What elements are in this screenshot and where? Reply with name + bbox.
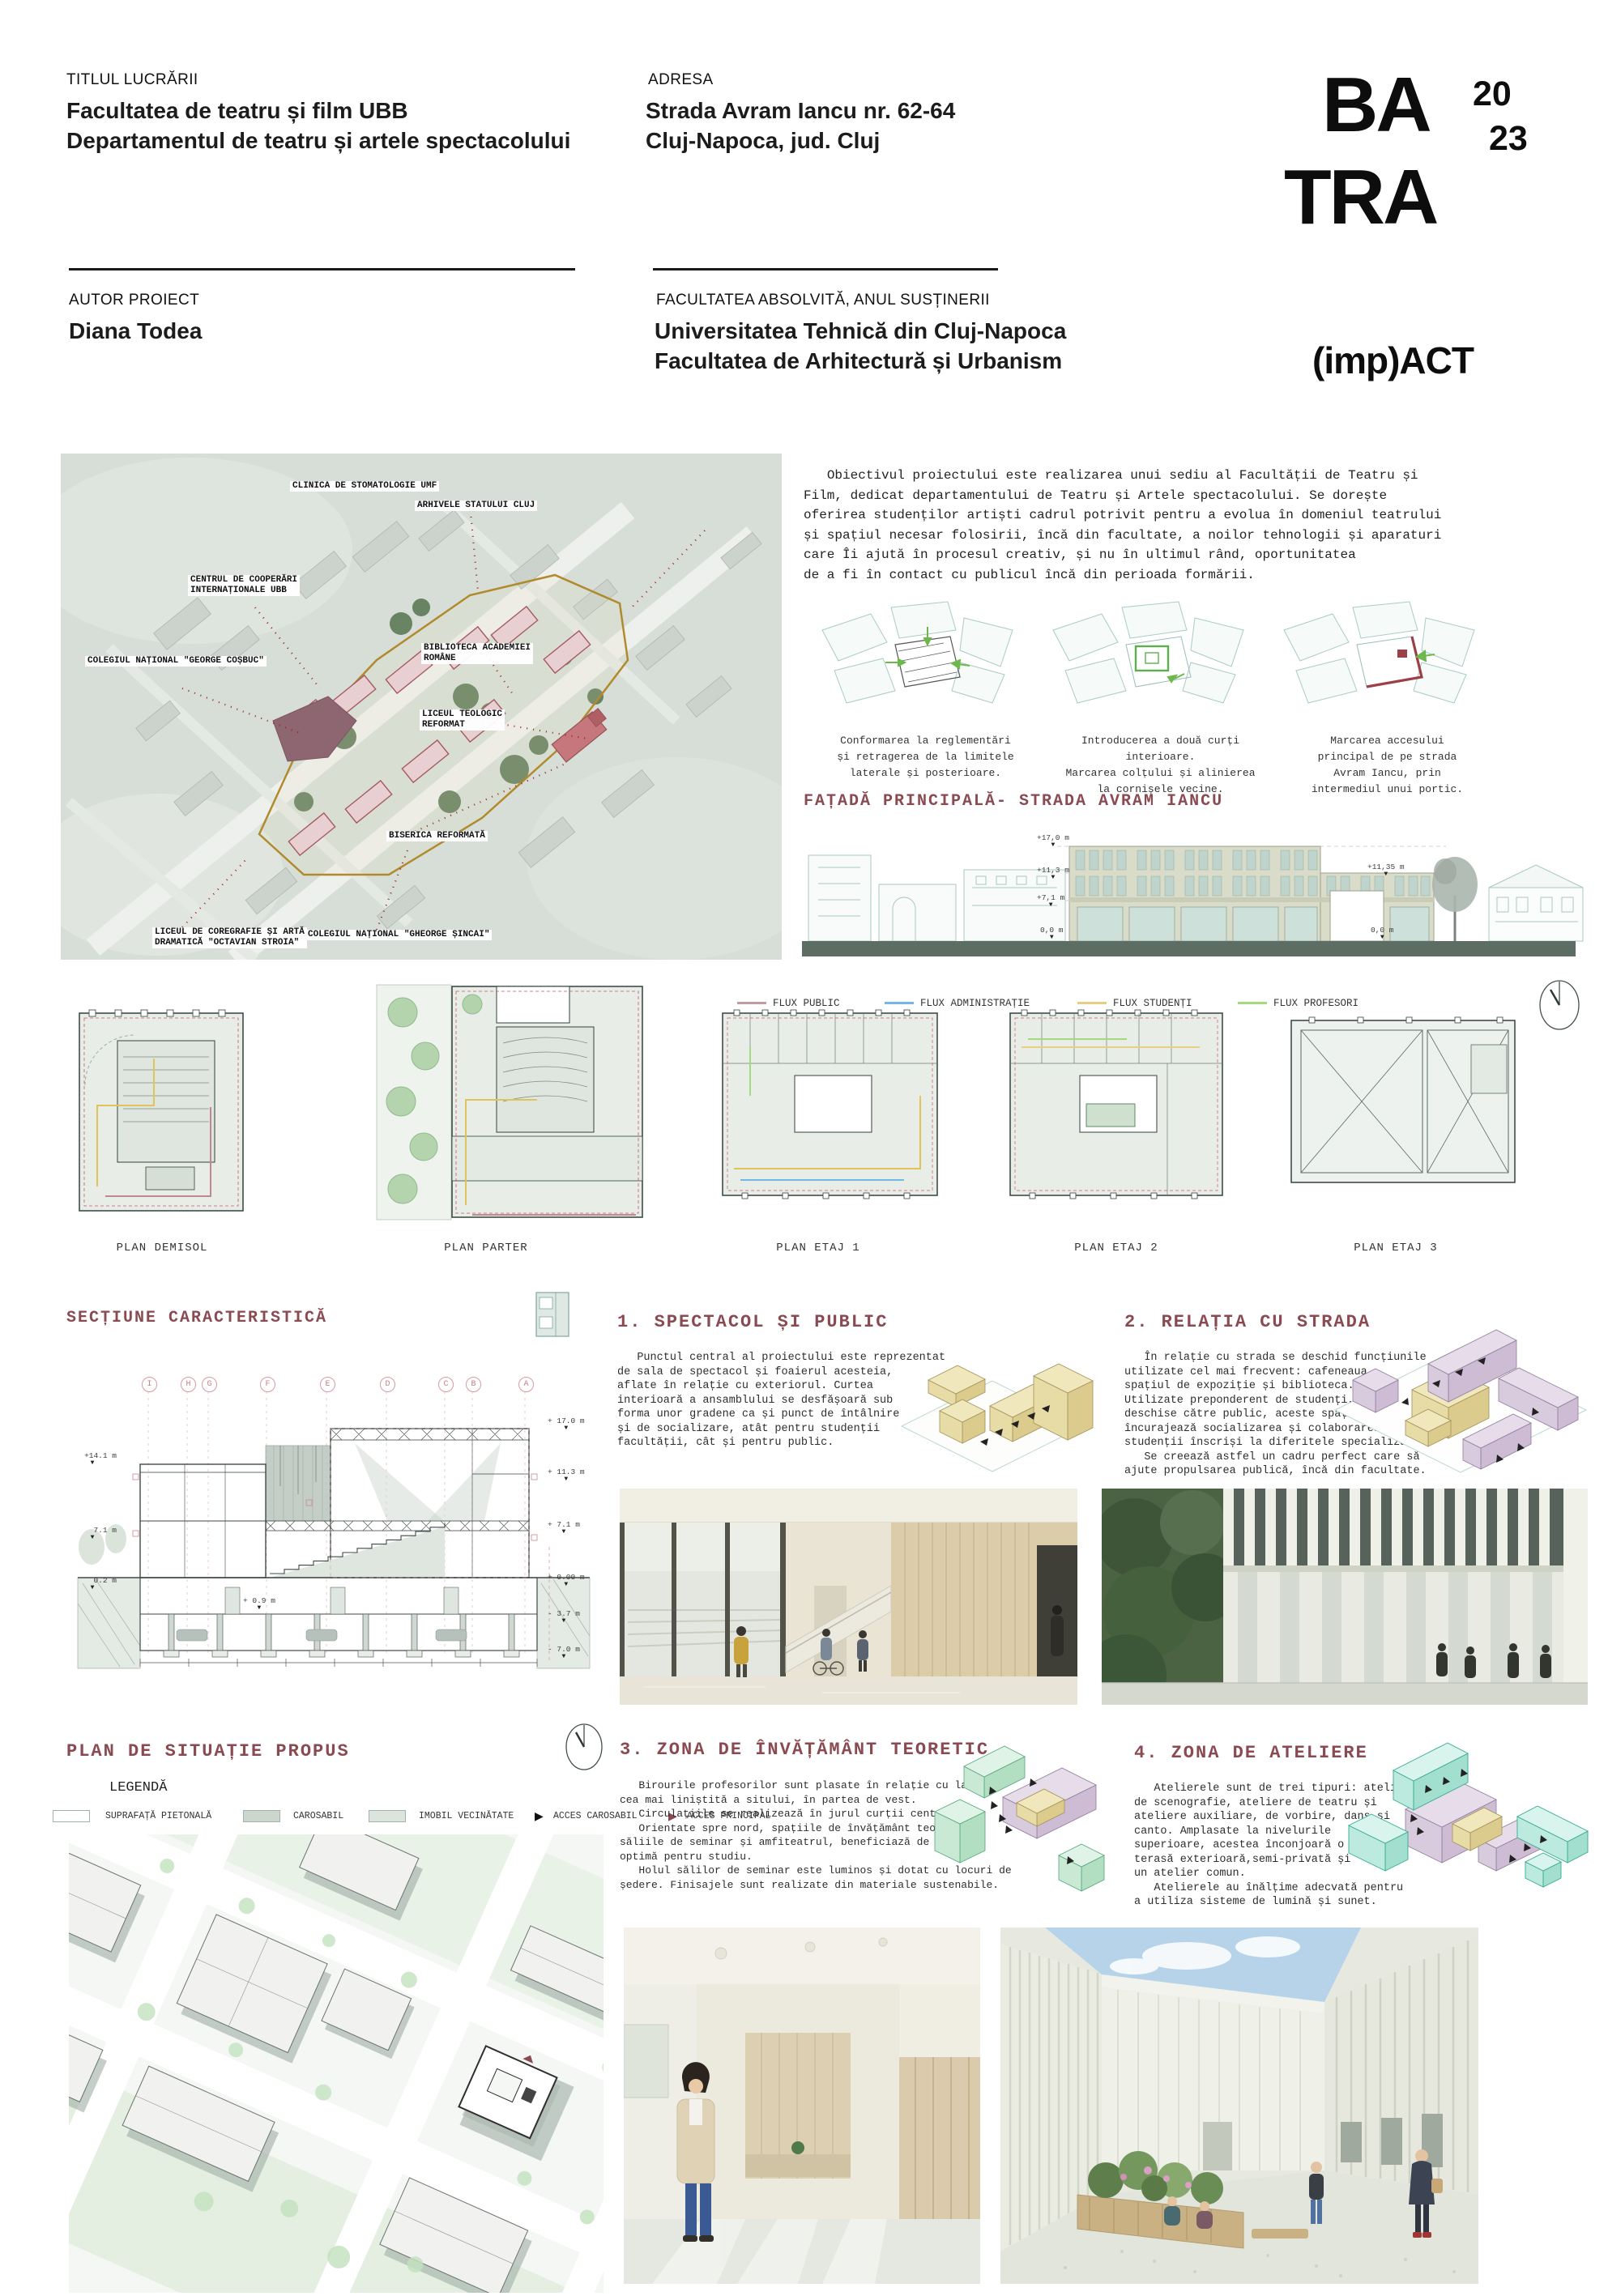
plan-label-etaj1: PLAN ETAJ 1 (729, 1241, 907, 1255)
section-level-right-2: + 11.3 m (548, 1468, 585, 1482)
concept-diagram-3 (1276, 598, 1482, 711)
facade-level-17: +17,0 m (1037, 834, 1069, 848)
facade-level-tree: +11,35 m (1367, 863, 1405, 877)
access-arrow-icon: ▶ (535, 1810, 544, 1822)
site-label-clinica: CLINICA DE STOMATOLOGIE UMF (290, 481, 439, 492)
batra-logo-ba: BA (1322, 66, 1430, 144)
legend-label-carosabil: CAROSABIL (293, 1810, 343, 1822)
level-marker-icon (548, 1618, 580, 1624)
flux-line-icon (885, 1002, 914, 1004)
grid-letter: I (142, 1377, 157, 1392)
batra-logo-year-bottom: 23 (1489, 121, 1528, 156)
render-street-view (1102, 1489, 1588, 1709)
grid-letter: A (518, 1377, 534, 1392)
address-label: ADRESA (648, 71, 714, 89)
street-tree (1432, 857, 1478, 941)
section-level-right-3: + 7.1 m (548, 1521, 580, 1535)
legend-swatch-carosabil (243, 1810, 280, 1822)
plan-demisol-drawing (73, 1008, 251, 1221)
author-label: AUTOR PROIECT (69, 292, 199, 309)
concept-caption-3: Marcarea accesului principal de pe strad… (1284, 733, 1491, 798)
plan-label-parter: PLAN PARTER (397, 1241, 575, 1255)
site-label-biblioteca: BIBLIOTECA ACADEMIEI ROMÂNE (421, 643, 533, 664)
project-title-line2: Departamentul de teatru și artele specta… (66, 126, 570, 155)
divider-right (653, 268, 998, 270)
site-label-liceul-teologic: LICEUL TEOLOGIC REFORMAT (420, 709, 505, 731)
section-level-left-1: +14.1 m (68, 1452, 117, 1466)
grid-letter: F (260, 1377, 275, 1392)
site-label-arhivele: ARHIVELE STATULUI CLUJ (415, 501, 537, 511)
section-level-right-1: + 17.0 m (548, 1417, 585, 1431)
section-level-left-3: 0.2 m (68, 1577, 117, 1591)
plan-etaj1-drawing (718, 1007, 942, 1223)
diagram-invatamant-teoretic (915, 1741, 1118, 1907)
batra-logo-tra: TRA (1284, 159, 1436, 236)
plan-etaj3-drawing (1285, 1012, 1523, 1220)
flux-line-icon (737, 1002, 766, 1004)
concept-caption-2: Introducerea a două curți interioare. Ma… (1049, 733, 1272, 798)
site-axonometric-drawing (61, 454, 782, 960)
project-title-line1: Facultatea de teatru și film UBB (66, 96, 408, 126)
facade-level-7: +7,1 m (1037, 894, 1064, 908)
level-marker-icon (1037, 842, 1069, 848)
objective-paragraph: Obiectivul proiectului este realizarea u… (804, 466, 1521, 585)
legend-label-vecinatate: IMOBIL VECINĂTATE (419, 1810, 514, 1822)
facade-level-0: 0,0 m (1040, 926, 1064, 940)
plan-etaj2-drawing (1005, 1007, 1227, 1223)
batra-logo-year-top: 20 (1473, 77, 1512, 112)
plan-parter-drawing (375, 978, 648, 1231)
faculty-label: FACULTATEA ABSOLVITĂ, ANUL SUSȚINERII (656, 292, 990, 309)
level-marker-icon (548, 1476, 585, 1482)
site-label-cosbuc: COLEGIUL NAȚIONAL "GEORGE COȘBUC" (85, 656, 267, 667)
plan-label-etaj2: PLAN ETAJ 2 (1027, 1241, 1205, 1255)
level-marker-icon (68, 1535, 117, 1540)
level-marker-icon (1037, 875, 1069, 880)
concept-diagram-1 (814, 598, 1021, 711)
facade-title: FAȚADĂ PRINCIPALĂ- STRADA AVRAM IANCU (804, 792, 1223, 811)
author-name: Diana Todea (69, 316, 202, 346)
grid-letter: G (202, 1377, 217, 1392)
render-corridor-interior (624, 1928, 980, 2288)
section-title: SECȚIUNE CARACTERISTICĂ (66, 1309, 327, 1327)
legend-label-pietonala: SUPRAFAȚĂ PIETONALĂ (105, 1810, 211, 1822)
grid-letter: C (438, 1377, 454, 1392)
diagram-zona-ateliere (1337, 1741, 1596, 1911)
section-level-left-2: 7.1 m (68, 1527, 117, 1540)
key-plan-icon (533, 1289, 572, 1344)
level-marker-icon (68, 1460, 117, 1466)
diagram-spectacol-public (891, 1322, 1094, 1492)
street-ground-strip (802, 941, 1576, 956)
grid-letter: H (181, 1377, 196, 1392)
grid-letter: B (466, 1377, 481, 1392)
poster-root: TITLUL LUCRĂRII Facultatea de teatru și … (0, 0, 1608, 2296)
divider-left (69, 268, 575, 270)
section-level-right-4: + 0.00 m (548, 1574, 585, 1587)
plan-label-etaj3: PLAN ETAJ 3 (1307, 1241, 1485, 1255)
render-courtyard (1000, 1928, 1478, 2288)
site-plan-title: PLAN DE SITUAȚIE PROPUS (66, 1741, 350, 1761)
grid-letter: D (380, 1377, 395, 1392)
title-label: TITLUL LUCRĂRII (66, 71, 198, 89)
address-line2: Cluj-Napoca, jud. Cluj (646, 126, 880, 155)
concept-diagram-2 (1045, 598, 1252, 711)
site-label-sincai: COLEGIUL NAȚIONAL "GHEORGE ȘINCAI" (305, 930, 492, 940)
level-marker-icon (548, 1529, 580, 1535)
level-marker-icon (1371, 935, 1394, 940)
north-compass-icon (1538, 978, 1581, 1036)
site-axonometric-image: CLINICA DE STOMATOLOGIE UMF ARHIVELE STA… (61, 454, 782, 960)
site-label-coregrafie: LICEUL DE COREGRAFIE ȘI ARTĂ DRAMATICĂ "… (152, 927, 307, 948)
level-marker-icon (548, 1582, 585, 1587)
render-foyer-interior (620, 1489, 1077, 1709)
site-plan-drawing (69, 1834, 604, 2296)
legend-swatch-pietonala (53, 1810, 90, 1822)
section4-heading: 4. ZONA DE ATELIERE (1134, 1743, 1368, 1763)
level-marker-icon (1040, 935, 1064, 940)
faculty-line2: Facultatea de Arhitectură și Urbanism (655, 346, 1062, 376)
facade-level-11: +11,3 m (1037, 867, 1069, 880)
level-marker-icon (548, 1425, 585, 1431)
section-drawing (63, 1344, 606, 1672)
plan-label-demisol: PLAN DEMISOL (73, 1241, 251, 1255)
level-marker-icon (548, 1654, 580, 1659)
level-marker-icon (68, 1585, 117, 1591)
level-marker-icon (1037, 902, 1064, 908)
legend-swatch-vecinatate (369, 1810, 406, 1822)
section-level-inner: + 0.9 m (243, 1597, 275, 1611)
concept-caption-1: Conformarea la reglementări și retragere… (822, 733, 1029, 782)
impact-logo: (imp)ACT (1312, 342, 1474, 379)
flux-legend-profesori: FLUX PROFESORI (1238, 996, 1358, 1011)
facade-drawing (802, 823, 1588, 962)
section-level-right-6: - 7.0 m (548, 1646, 580, 1659)
address-line1: Strada Avram Iancu nr. 62-64 (646, 96, 955, 126)
legend-title: LEGENDĂ (109, 1780, 167, 1795)
facade-level-0b: 0,0 m (1371, 926, 1394, 940)
grid-letter: E (320, 1377, 335, 1392)
site-label-centrul: CENTRUL DE COOPERĂRI INTERNAȚIONALE UBB (188, 575, 300, 596)
flux-line-icon (1077, 1002, 1107, 1004)
level-marker-icon (1367, 871, 1405, 877)
site-label-biserica: BISERICA REFORMATĂ (386, 831, 488, 841)
faculty-line1: Universitatea Tehnică din Cluj-Napoca (655, 316, 1066, 346)
diagram-relatia-cu-strada (1327, 1325, 1594, 1483)
section-level-right-5: - 3.7 m (548, 1610, 580, 1624)
section1-heading: 1. SPECTACOL ȘI PUBLIC (617, 1312, 888, 1332)
north-compass-icon (564, 1722, 604, 1776)
flux-line-icon (1238, 1002, 1267, 1004)
level-marker-icon (243, 1605, 275, 1611)
